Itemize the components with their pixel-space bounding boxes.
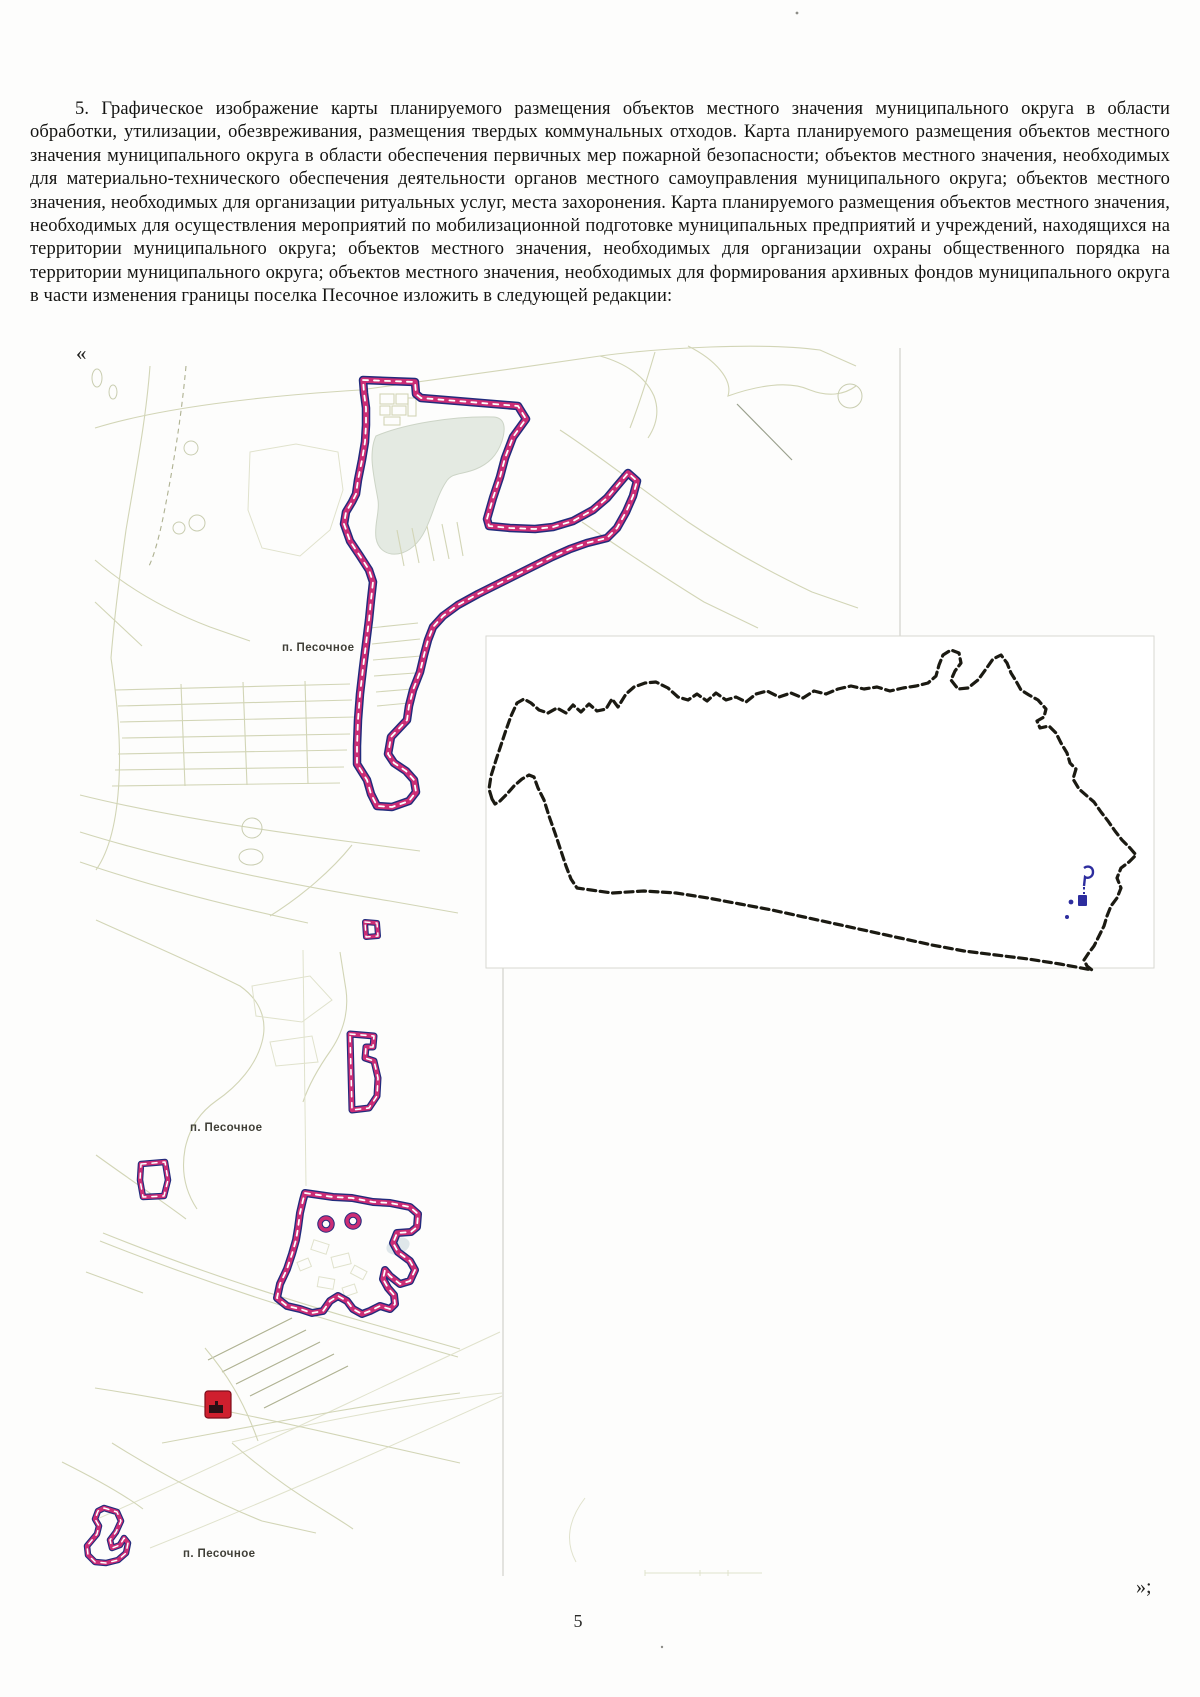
settlement-label-2: п. Песочное bbox=[190, 1122, 262, 1134]
settlement-boundary-small-square bbox=[365, 922, 378, 937]
settlement-boundary-b-shape bbox=[350, 1034, 378, 1110]
page-number: 5 bbox=[556, 1611, 600, 1632]
document-page: 5. Графическое изображение карты планиру… bbox=[0, 0, 1200, 1697]
settlement-boundary-small-rect bbox=[140, 1162, 168, 1197]
scan-speck bbox=[796, 12, 799, 15]
close-quote-mark: »; bbox=[1136, 1576, 1152, 1599]
settlement-label-3: п. Песочное bbox=[183, 1548, 255, 1560]
red-object-marker bbox=[205, 1391, 231, 1418]
settlement-label-1: п. Песочное bbox=[282, 642, 354, 654]
lake bbox=[372, 417, 504, 554]
scan-speck bbox=[661, 1646, 663, 1648]
inset-map bbox=[486, 636, 1154, 970]
settlement-boundary-south bbox=[87, 1508, 128, 1563]
map-figure: п. Песочное п. Песочное п. Песочное bbox=[0, 0, 1200, 1697]
settlement-boundary-main bbox=[277, 1193, 418, 1314]
